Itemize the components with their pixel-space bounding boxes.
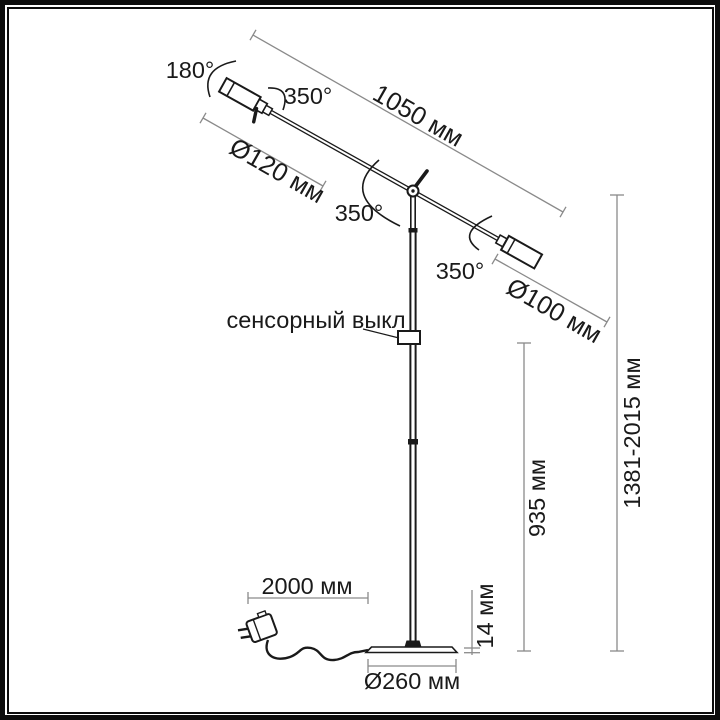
lamp-head-left <box>214 78 274 127</box>
lamp-pole <box>408 196 418 646</box>
diagram-canvas: 1050 мм Ø120 мм Ø100 мм 1381-2015 мм 935… <box>0 0 720 720</box>
swivel-right-label: 350° <box>436 258 485 284</box>
total-height-label: 1381-2015 мм <box>619 357 645 508</box>
pole-joint-lower <box>408 439 418 445</box>
right-head-diameter-label: Ø100 мм <box>502 273 607 349</box>
touch-switch-label: сенсорный выкл <box>226 307 405 333</box>
pole-height-label: 935 мм <box>524 459 550 537</box>
cable-length-label: 2000 мм <box>261 573 352 599</box>
base-diameter-label: Ø260 мм <box>364 668 460 694</box>
plug-prong-bottom <box>241 634 251 639</box>
swivel-left-label: 350° <box>284 83 333 109</box>
base-thickness-label: 14 мм <box>472 584 498 649</box>
lamp-dimension-diagram: 1050 мм Ø120 мм Ø100 мм 1381-2015 мм 935… <box>0 0 720 720</box>
pole-base-collar <box>405 641 422 648</box>
pole-joint-upper <box>409 228 418 233</box>
power-plug <box>235 610 278 647</box>
dim-tick-start <box>200 113 206 123</box>
rotation-180-label: 180° <box>166 57 215 83</box>
pivot-lever <box>415 171 427 187</box>
pivot-joint <box>408 171 428 197</box>
left-head-diameter-label: Ø120 мм <box>225 133 330 209</box>
arm-length-label: 1050 мм <box>368 79 468 152</box>
power-cable <box>267 640 368 660</box>
swivel-pivot-label: 350° <box>335 200 384 226</box>
plug-body <box>246 613 278 643</box>
dim-tick-start <box>250 30 256 40</box>
dim-tick-end <box>560 207 566 217</box>
pivot-screw-dot <box>411 189 414 192</box>
dim-tick-start <box>492 254 498 264</box>
plug-prong-top <box>238 627 248 632</box>
head-left-cylinder <box>219 78 261 111</box>
base-plate <box>366 647 457 653</box>
arc-swivel-left <box>268 88 285 110</box>
